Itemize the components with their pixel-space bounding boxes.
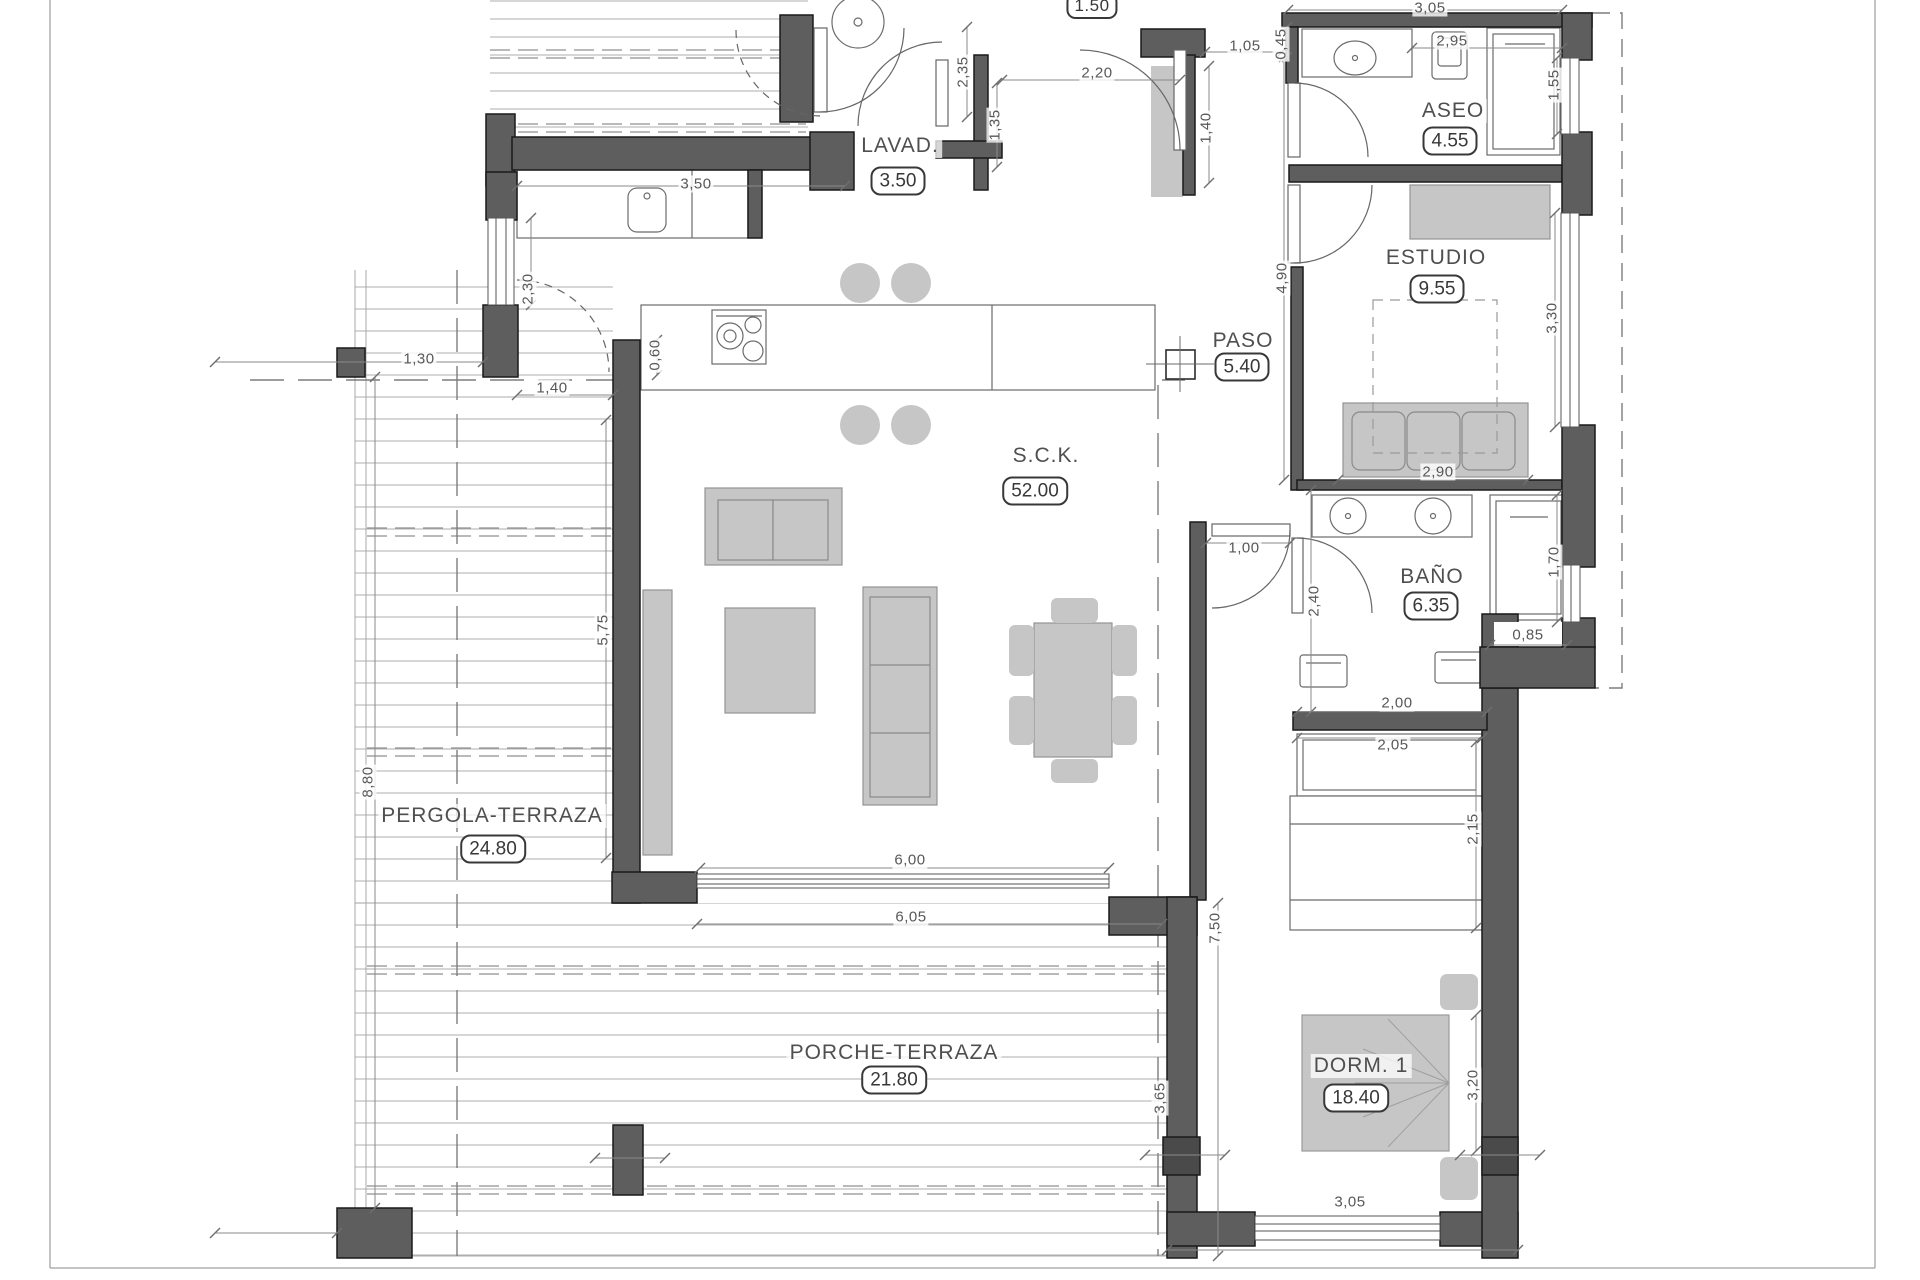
estudio-desk	[1410, 185, 1550, 239]
dimension-label: 6,00	[892, 852, 927, 869]
dimension-label: 1,30	[401, 351, 436, 368]
dimension-label: 3,30	[1544, 300, 1561, 335]
column	[1482, 1137, 1518, 1175]
nightstand	[1440, 974, 1478, 1010]
nightstand	[1440, 1157, 1478, 1200]
dimension-label: 3,20	[1465, 1067, 1482, 1102]
stool	[840, 405, 880, 445]
dimension-label: 0,60	[647, 337, 664, 372]
room-label-estudio: ESTUDIO	[1383, 246, 1489, 270]
room-label-porche: PORCHE-TERRAZA	[787, 1041, 1002, 1065]
tv-cabinet	[643, 590, 672, 855]
dimension-label: 3,05	[1332, 1194, 1367, 1211]
dimension-label: 2,05	[1375, 737, 1410, 754]
dimension-label: 0,45	[1273, 26, 1290, 61]
area-badge-pergola: 24.80	[460, 835, 526, 864]
door-leaf	[814, 28, 827, 112]
dimension-label: 2,20	[1079, 65, 1114, 82]
column	[1163, 1137, 1200, 1175]
dimension-label: 1.50	[1066, 0, 1117, 19]
dining-chair	[1112, 625, 1137, 676]
dimension-label: 3,65	[1152, 1080, 1169, 1115]
dimension-label: 8,80	[360, 764, 377, 799]
room-label-pergola: PERGOLA-TERRAZA	[378, 804, 606, 828]
door-leaf	[1292, 538, 1303, 613]
stool	[891, 405, 931, 445]
coffee-table	[725, 608, 815, 713]
dining-table	[1034, 623, 1112, 757]
floor-plan: LAVAD.3.50ASEO4.55ESTUDIO9.55PASO5.40S.C…	[0, 0, 1920, 1280]
area-badge-paso: 5.40	[1215, 353, 1270, 382]
dimension-label: 0,85	[1510, 627, 1545, 644]
area-badge-sck: 52.00	[1002, 477, 1068, 506]
window	[1255, 1216, 1440, 1240]
bano-toilet	[1435, 652, 1482, 683]
area-badge-lavad: 3.50	[871, 167, 926, 196]
dimension-label: 7,50	[1207, 910, 1224, 945]
room-label-lavad: LAVAD.	[858, 134, 942, 158]
dimension-label: 2,90	[1420, 464, 1455, 481]
room-label-aseo: ASEO	[1419, 99, 1487, 123]
dimension-label: 1,00	[1226, 540, 1261, 557]
dimension-label: 1,05	[1227, 38, 1262, 55]
stool	[840, 263, 880, 303]
dimension-label: 1,40	[534, 380, 569, 397]
window	[488, 218, 514, 305]
room-label-dorm1: DORM. 1	[1311, 1054, 1412, 1078]
room-label-sck: S.C.K.	[1010, 444, 1083, 468]
dimension-label: 2,30	[520, 271, 537, 306]
dining-chair	[1051, 759, 1098, 783]
door-leaf	[1212, 524, 1290, 536]
dimension-label: 2,40	[1306, 583, 1323, 618]
dimension-label: 3,05	[1412, 0, 1447, 17]
bano-bidet	[1300, 655, 1347, 687]
dimension-label: 5,75	[595, 612, 612, 647]
dining-chair	[1009, 625, 1034, 676]
door-leaf	[936, 60, 948, 126]
floor-plan-drawing	[0, 0, 1920, 1280]
dimension-label: 4,90	[1274, 260, 1291, 295]
dimension-label: 1,70	[1546, 544, 1563, 579]
dimension-label: 3,50	[678, 176, 713, 193]
door-leaf	[1288, 83, 1300, 157]
dining-chair	[1112, 696, 1137, 745]
dimension-label: 2,15	[1465, 811, 1482, 846]
entry-door-leaf	[1174, 50, 1186, 150]
dimension-label: 1,55	[1546, 67, 1563, 102]
door-leaf	[1288, 185, 1300, 263]
area-badge-estudio: 9.55	[1410, 275, 1465, 304]
dimension-label: 6,05	[893, 909, 928, 926]
area-badge-porche: 21.80	[861, 1066, 927, 1095]
stool	[891, 263, 931, 303]
area-badge-bano: 6.35	[1404, 592, 1459, 621]
dining-chair	[1009, 696, 1034, 745]
single-bed	[1290, 796, 1482, 930]
room-label-bano: BAÑO	[1397, 565, 1467, 589]
dimension-label: 2,95	[1434, 33, 1469, 50]
sliding-glass-door	[697, 874, 1109, 888]
area-badge-dorm1: 18.40	[1323, 1084, 1389, 1113]
room-label-paso: PASO	[1210, 329, 1277, 353]
dimension-label: 1,35	[987, 107, 1004, 142]
dimension-label: 1,40	[1198, 110, 1215, 145]
grid-marker-cross	[1146, 336, 1214, 392]
dining-chair	[1051, 598, 1098, 623]
area-badge-aseo: 4.55	[1423, 127, 1478, 156]
dimension-label: 2,35	[955, 54, 972, 89]
dimension-label: 2,00	[1379, 695, 1414, 712]
